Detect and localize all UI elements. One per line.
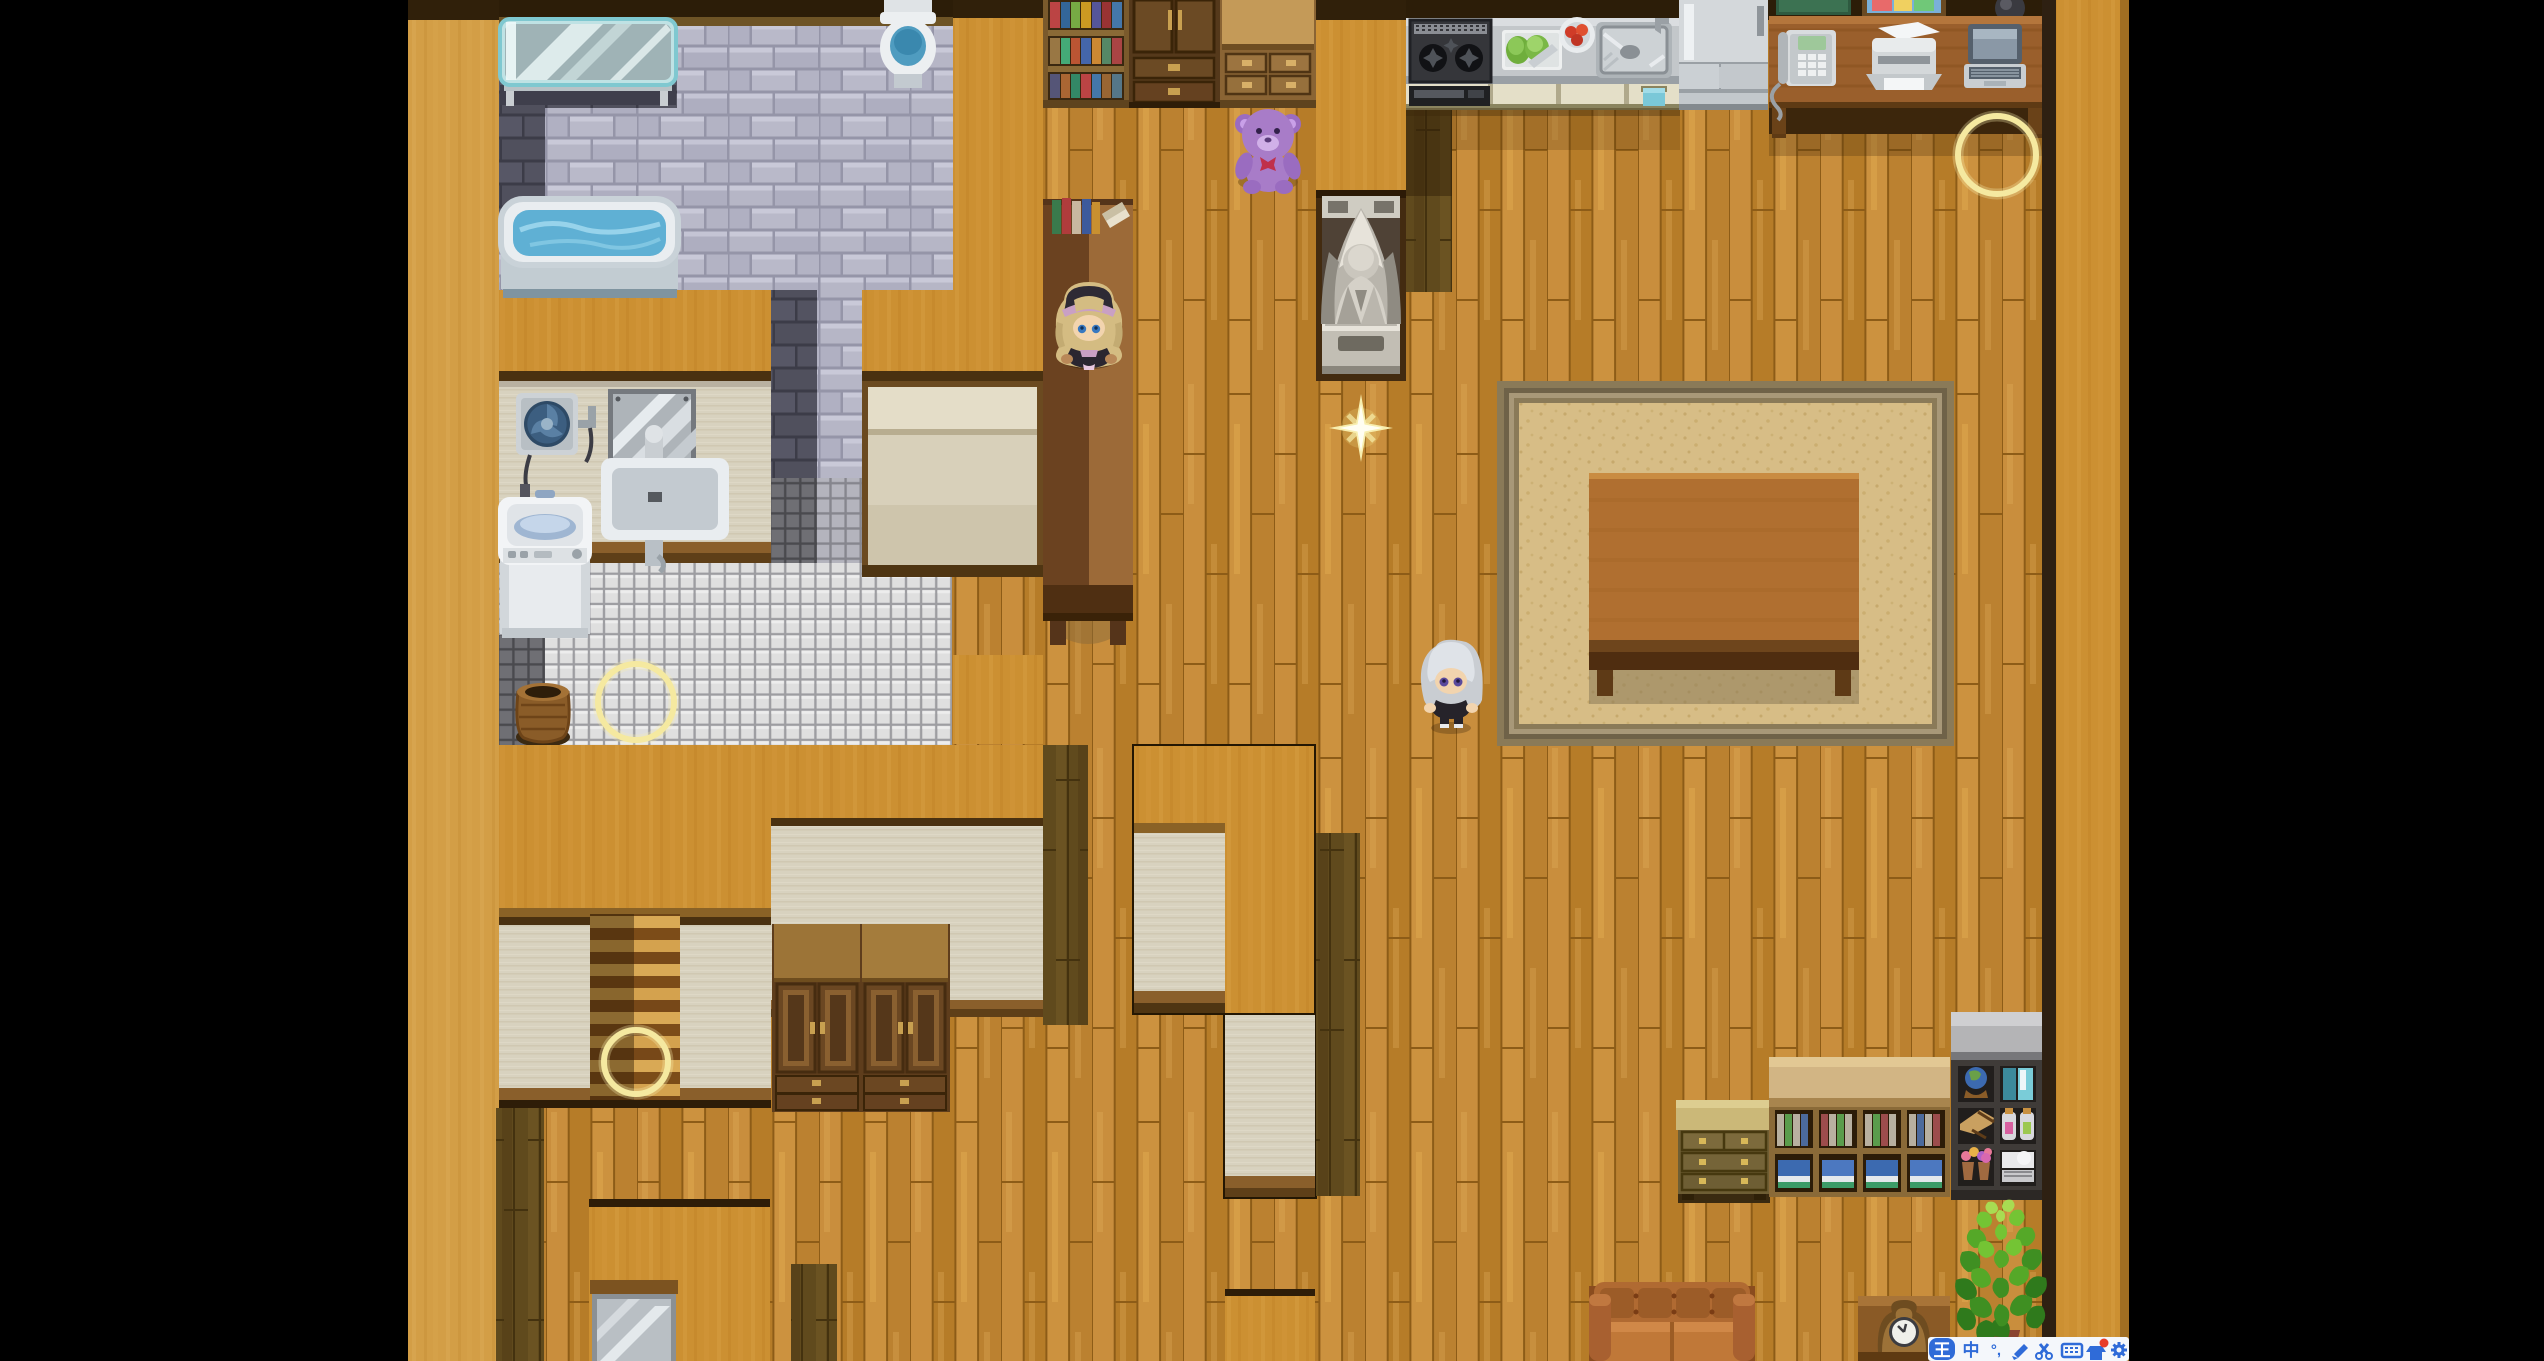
svg-text:°,: °, bbox=[1991, 1342, 2001, 1359]
svg-text:中: 中 bbox=[1963, 1340, 1980, 1360]
svg-text:王: 王 bbox=[1934, 1341, 1951, 1360]
